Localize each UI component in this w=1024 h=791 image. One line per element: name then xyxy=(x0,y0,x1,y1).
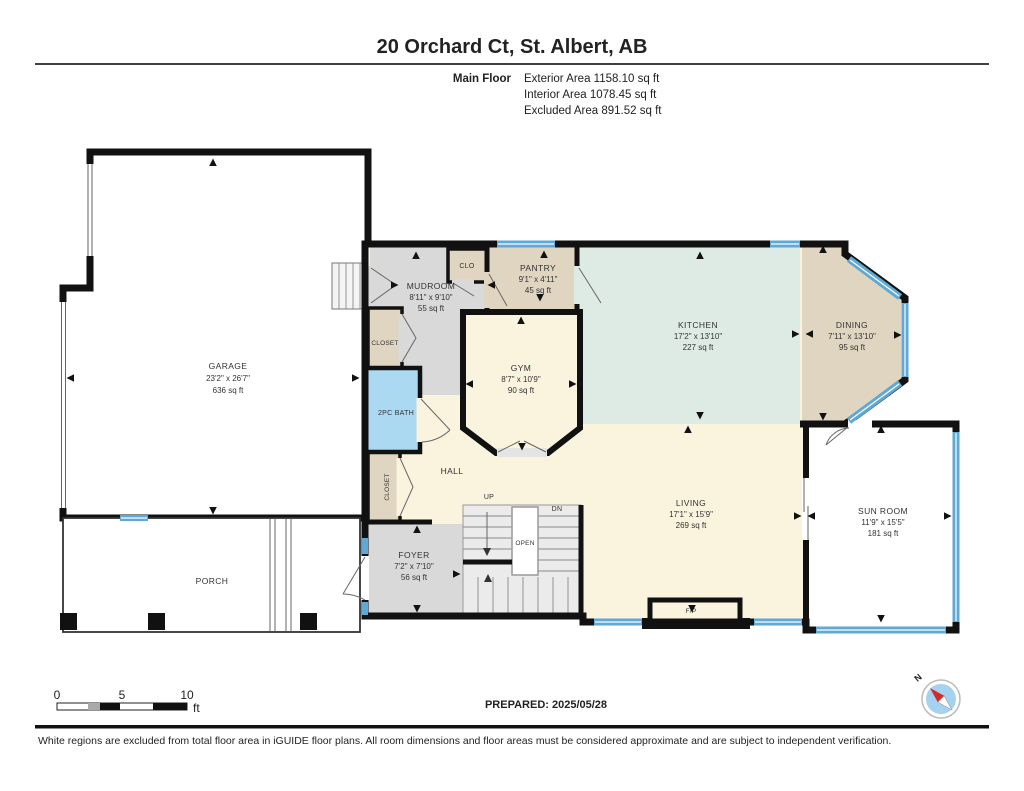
closet1-opening xyxy=(399,314,405,362)
pantry-right-opening xyxy=(574,266,580,304)
scale-seg-gray xyxy=(88,703,100,710)
scale-tick-10: 10 xyxy=(180,688,194,702)
garage-door-opening-1 xyxy=(86,164,94,256)
hall-label: HALL xyxy=(441,466,464,476)
clo-label: CLO xyxy=(459,263,475,270)
svg-text:DINING: DINING xyxy=(836,320,868,330)
svg-text:8'7" x 10'9": 8'7" x 10'9" xyxy=(501,375,541,384)
porch-label: PORCH xyxy=(196,576,229,586)
garage-details xyxy=(60,164,394,508)
fireplace: F/P xyxy=(642,600,750,629)
svg-text:636 sq ft: 636 sq ft xyxy=(213,386,244,395)
svg-text:269 sq ft: 269 sq ft xyxy=(676,521,707,530)
svg-text:45 sq ft: 45 sq ft xyxy=(525,286,552,295)
porch-post xyxy=(300,613,317,630)
svg-text:95 sq ft: 95 sq ft xyxy=(839,343,866,352)
compass-north-label: N xyxy=(912,672,923,684)
page-title: 20 Orchard Ct, St. Albert, AB xyxy=(377,36,648,58)
svg-text:17'2" x 13'10": 17'2" x 13'10" xyxy=(674,332,722,341)
svg-text:56 sq ft: 56 sq ft xyxy=(401,573,428,582)
bath-opening xyxy=(417,398,424,442)
dn-label: DN xyxy=(552,506,563,513)
patio-opening xyxy=(802,478,810,540)
svg-text:PANTRY: PANTRY xyxy=(520,263,556,273)
svg-text:227 sq ft: 227 sq ft xyxy=(683,343,714,352)
excluded-area: Excluded Area 891.52 sq ft xyxy=(524,105,662,117)
svg-text:GYM: GYM xyxy=(511,363,532,373)
porch-post xyxy=(60,613,77,630)
svg-text:17'1" x 15'9": 17'1" x 15'9" xyxy=(669,510,713,519)
svg-text:8'11" x 9'10": 8'11" x 9'10" xyxy=(409,293,452,302)
svg-text:SUN ROOM: SUN ROOM xyxy=(858,506,908,516)
floor-label: Main Floor xyxy=(453,73,512,85)
up-label: UP xyxy=(484,494,494,501)
svg-text:7'11" x 13'10": 7'11" x 13'10" xyxy=(828,332,876,341)
svg-text:7'2" x 7'10": 7'2" x 7'10" xyxy=(394,562,434,571)
porch-post xyxy=(148,613,165,630)
compass-icon: N xyxy=(912,672,960,718)
prepared-date: PREPARED: 2025/05/28 xyxy=(485,699,607,711)
disclaimer-text: White regions are excluded from total fl… xyxy=(38,735,891,747)
scale-seg-black-1 xyxy=(100,703,120,710)
svg-text:11'9" x 15'5": 11'9" x 15'5" xyxy=(861,518,904,527)
garage-room xyxy=(63,152,368,518)
svg-text:MUDROOM: MUDROOM xyxy=(407,281,456,291)
svg-text:23'2" x 26'7": 23'2" x 26'7" xyxy=(206,374,250,383)
header: 20 Orchard Ct, St. Albert, AB Main Floor… xyxy=(35,36,989,117)
closet2-opening xyxy=(397,458,403,516)
scale-tick-5: 5 xyxy=(119,688,126,702)
open-label: OPEN xyxy=(515,540,534,547)
svg-text:181 sq ft: 181 sq ft xyxy=(868,529,899,538)
interior-area: Interior Area 1078.45 sq ft xyxy=(524,89,657,101)
floor-plan-page: 20 Orchard Ct, St. Albert, AB Main Floor… xyxy=(0,0,1024,791)
scale-seg-black-2 xyxy=(153,703,187,710)
closet2-label: CLOSET xyxy=(384,473,391,500)
scale-bar: 0 5 10 ft xyxy=(54,688,201,715)
svg-text:LIVING: LIVING xyxy=(676,498,706,508)
staircase xyxy=(463,505,581,619)
scale-unit: ft xyxy=(193,701,200,715)
footer-divider xyxy=(35,725,989,729)
sunroom-room xyxy=(809,427,953,627)
exterior-area: Exterior Area 1158.10 sq ft xyxy=(524,73,660,85)
svg-text:GARAGE: GARAGE xyxy=(209,361,248,371)
garage-label: GARAGE 23'2" x 26'7" 636 sq ft xyxy=(206,361,250,395)
bath-label: 2PC BATH xyxy=(378,410,414,417)
floor-plan-svg: 20 Orchard Ct, St. Albert, AB Main Floor… xyxy=(0,0,1024,791)
svg-text:KITCHEN: KITCHEN xyxy=(678,320,718,330)
svg-text:FOYER: FOYER xyxy=(398,550,429,560)
pantry-left-opening xyxy=(484,272,490,308)
closet1-label: CLOSET xyxy=(371,340,398,347)
svg-text:55 sq ft: 55 sq ft xyxy=(418,304,445,313)
svg-text:90 sq ft: 90 sq ft xyxy=(508,386,535,395)
svg-text:9'1" x 4'11": 9'1" x 4'11" xyxy=(519,275,558,284)
closet-1 xyxy=(368,308,402,368)
scale-tick-0: 0 xyxy=(54,688,61,702)
